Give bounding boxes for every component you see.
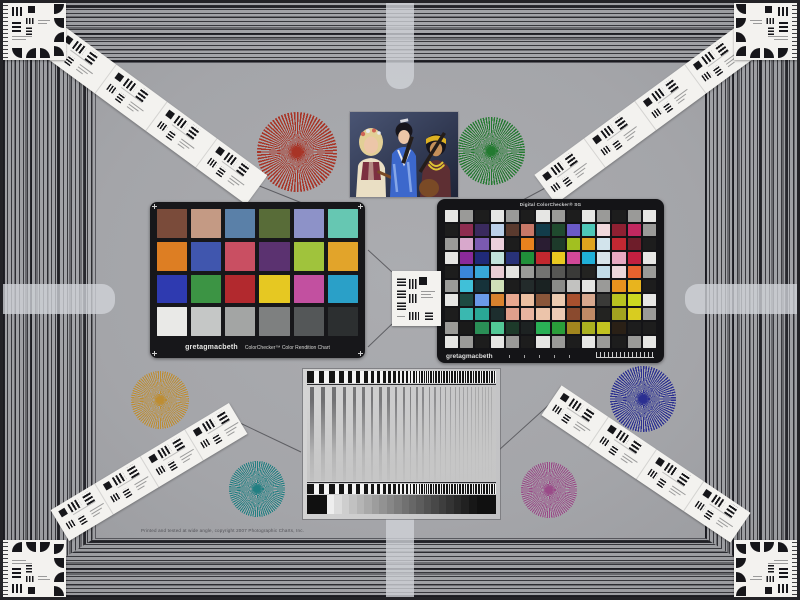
decorative-shape [421,291,435,292]
fan-mark [736,544,746,554]
sg-patch [536,238,549,250]
sg-patch [612,210,625,222]
portrait-photo [350,112,458,197]
cc-patch [157,209,187,238]
decorative-shape [12,39,26,40]
usaf-bars [409,312,419,320]
sg-patch [506,336,519,348]
sg-patch [582,210,595,222]
decorative-shape [319,484,325,494]
sg-patch [475,294,488,306]
usaf-square [103,481,113,491]
decorative-shape [410,371,412,383]
sg-patch [552,224,565,236]
sg-patch [536,280,549,292]
usaf-bars [766,18,774,24]
fan-mark [736,586,746,596]
wedge-end-square [476,495,496,514]
decorative-shape [364,484,368,494]
decorative-shape [426,484,427,494]
sg-patch [445,252,458,264]
decorative-shape [152,206,157,207]
decorative-shape [774,39,788,40]
usaf-bars [12,7,24,16]
sg-patch [506,294,519,306]
fan-mark [40,48,50,58]
cc-patch [328,275,358,304]
sg-patch [643,280,656,292]
decorative-shape [307,371,314,383]
cc-patch [294,242,324,271]
cc-patch [191,307,221,336]
sg-patch [612,294,625,306]
edge-marker-left [3,284,115,314]
sg-patch [628,336,641,348]
decorative-shape [348,371,353,383]
cc-patch [157,275,187,304]
usaf-bars [609,445,620,456]
cc-patch [294,275,324,304]
usaf-bars [768,27,774,35]
sg-patch [536,210,549,222]
decorative-shape [398,371,400,383]
colorchecker-sg-brand: gretagmacbeth [446,353,493,360]
fan-mark [54,586,64,596]
sg-patch [475,252,488,264]
sg-patch [536,308,549,320]
sg-patch [597,210,610,222]
decorative-shape [424,484,425,494]
sg-patch [567,238,580,250]
decorative-shape [421,294,431,295]
decorative-shape [2,2,66,60]
decorative-shape [38,579,50,580]
decorative-shape [307,484,314,494]
sg-patch [582,322,595,334]
fan-mark [54,558,64,568]
fan-mark [750,48,760,58]
wedge-end-square [307,495,327,514]
sg-patch [628,210,641,222]
decorative-shape [426,371,427,383]
sg-patch [536,252,549,264]
green-starburst [457,117,525,185]
usaf-bars [26,18,34,24]
fan-mark [764,542,774,552]
decorative-shape [753,576,762,577]
sg-patch [552,266,565,278]
decorative-shape [356,484,360,494]
sg-patch [521,322,534,334]
sg-patch [552,294,565,306]
usaf-square [58,508,68,518]
sg-patch [643,308,656,320]
sg-patch [536,224,549,236]
decorative-shape [329,371,335,383]
usaf-square [607,425,617,435]
fan-mark [736,572,746,582]
usaf-bars [768,565,774,573]
usaf-square [28,6,35,13]
usaf-square [542,171,552,181]
decorative-shape [377,484,380,494]
decorative-shape [734,540,798,598]
fan-mark [54,572,64,582]
sg-patch [612,322,625,334]
ruler-ticks [792,4,797,58]
cc-patch [328,307,358,336]
fan-mark [736,558,746,568]
gray-step [469,495,477,514]
fan-mark [54,544,64,554]
usaf-square [28,587,35,594]
usaf-square [148,454,158,464]
sweep-fade-overlay [307,387,496,481]
decorative-shape [402,371,404,383]
sg-patch [491,224,504,236]
usaf-bars [77,514,88,525]
decorative-shape [12,563,32,564]
sg-patch [612,238,625,250]
decorative-shape [319,371,325,383]
sg-patch [506,308,519,320]
usaf-bars [662,102,673,113]
sg-patch [460,308,473,320]
sg-patch [597,308,610,320]
cc-patch [157,307,187,336]
sg-tick-marks [509,355,580,358]
decorative-shape [421,371,422,383]
sg-patch [552,280,565,292]
usaf-bars [562,176,573,187]
colorchecker-sg-title: Digital ColorChecker® SG [437,202,664,207]
usaf-bars [656,477,667,488]
sg-patch [552,238,565,250]
sg-patch [628,224,641,236]
sg-patch [460,210,473,222]
sg-patch [643,210,656,222]
usaf-bars [155,465,166,476]
sg-patch [597,224,610,236]
decorative-shape [383,371,386,383]
usaf-square [765,587,772,594]
sg-patch [445,308,458,320]
decorative-shape [12,560,26,561]
sg-patch [628,252,641,264]
sg-patch [521,280,534,292]
sg-patch [506,280,519,292]
sg-patch [475,280,488,292]
fan-mark [26,542,36,552]
usaf-bars [564,152,578,167]
usaf-bars [12,20,21,32]
usaf-bars [26,565,32,573]
sg-patch [491,266,504,278]
usaf-bars [647,468,658,479]
sg-patch [582,252,595,264]
fan-mark [764,48,774,58]
sg-patch [567,266,580,278]
sg-patch [445,266,458,278]
cc-plus-mark [152,351,157,356]
test-chart-scene: gretagmacbethColorChecker™ Color Renditi… [0,0,800,600]
cc-plus-mark [152,204,157,209]
usaf-bars [599,436,610,447]
usaf-bars [776,584,788,593]
decorative-shape [768,563,788,564]
sg-patch [506,252,519,264]
cc-patch [259,242,289,271]
usaf-bars [409,294,417,303]
decorative-shape [419,371,420,383]
sg-patch [628,294,641,306]
sg-patch [582,336,595,348]
sg-patch [536,266,549,278]
decorative-shape [339,484,344,494]
sg-patch [643,224,656,236]
colorchecker-classic-grid [157,209,358,336]
sg-patch [491,322,504,334]
usaf-bars [26,576,34,582]
sg-patch [612,336,625,348]
ruler-ticks [3,4,8,58]
sg-patch [628,266,641,278]
decorative-shape [397,316,405,317]
usaf-bars [701,71,712,82]
decorative-shape [38,576,47,577]
decorative-shape [364,371,368,383]
decorative-shape [416,371,418,383]
usaf-bars [397,278,406,286]
sg-patch [597,280,610,292]
sweep-rule-top [307,384,496,385]
fine-print: Printed and tested at wide angle, copyri… [141,528,341,533]
sg-patch [612,308,625,320]
decorative-shape [339,371,344,383]
sg-patch [567,336,580,348]
usaf-bars [66,519,77,530]
colorchecker-classic-chart: gretagmacbethColorChecker™ Color Renditi… [150,202,365,358]
fan-mark [736,46,746,56]
sg-patch [506,210,519,222]
sg-patch [552,336,565,348]
sg-patch [475,266,488,278]
cc-patch [259,275,289,304]
decorative-shape [358,353,363,354]
usaf-bars [165,129,176,140]
sg-patch [597,238,610,250]
fan-mark [40,542,50,552]
usaf-square [702,489,712,499]
decorative-shape [734,2,798,60]
decorative-shape [413,484,415,494]
sg-patch [475,322,488,334]
sg-patch [445,238,458,250]
sg-patch [643,336,656,348]
sg-patch [612,224,625,236]
sg-patch [597,294,610,306]
edge-marker-top [386,3,414,89]
sg-patch [628,322,641,334]
sg-patch [475,224,488,236]
sg-patch [567,224,580,236]
fan-mark [12,48,22,58]
usaf-square [643,98,653,108]
usaf-bars [200,438,211,449]
sg-patch [460,266,473,278]
sg-patch [582,294,595,306]
sg-patch [536,294,549,306]
fan-mark [778,48,788,58]
fan-mark [736,18,746,28]
fan-mark [54,32,64,42]
decorative-shape [348,484,353,494]
sg-patch [567,322,580,334]
sweep-rule-bottom [307,482,496,483]
cc-patch [191,275,221,304]
colorchecker-sg-chart: Digital ColorChecker® SG gretagmacbeth [437,199,664,363]
usaf-bars [776,7,788,16]
decorative-shape [753,23,762,24]
fan-mark [12,542,22,552]
sg-patch [475,308,488,320]
cc-patch [294,307,324,336]
frequency-sweep-chart [303,369,500,519]
usaf-bars [612,139,623,150]
usaf-bars [561,413,572,424]
sg-patch [506,322,519,334]
decorative-shape [410,484,412,494]
sg-patch [506,224,519,236]
sg-patch [643,294,656,306]
cc-patch [259,209,289,238]
usaf-bars [766,576,774,582]
sg-patch [521,266,534,278]
decorative-shape [358,206,363,207]
sg-patch [628,238,641,250]
usaf-bars [550,181,561,192]
decorative-shape [377,371,380,383]
sg-patch [491,336,504,348]
sg-patch [460,224,473,236]
decorative-shape [774,560,788,561]
sg-patch [460,238,473,250]
sg-patch [460,322,473,334]
corner-registration-card [734,2,798,60]
decorative-shape [750,579,762,580]
sg-patch [597,252,610,264]
sg-patch [491,210,504,222]
sg-patch [521,238,534,250]
cc-patch [191,209,221,238]
corner-registration-card [2,2,66,60]
decorative-shape [398,484,400,494]
sg-patch [612,252,625,264]
decorative-shape [393,371,396,383]
decorative-shape [750,20,762,21]
sg-patch [506,266,519,278]
decorative-shape [388,371,391,383]
decorative-shape [419,484,420,494]
sg-patch [521,308,534,320]
usaf-square [165,109,175,119]
usaf-bars [122,487,133,498]
decorative-shape [38,23,47,24]
corner-registration-card [2,540,66,598]
sg-patch [643,266,656,278]
sg-patch [567,252,580,264]
sg-patch [597,336,610,348]
sg-patch [567,280,580,292]
sg-patch [521,224,534,236]
decorative-shape [421,297,433,298]
sg-patch [582,266,595,278]
sg-patch [582,308,595,320]
sg-patch [475,210,488,222]
sg-patch [552,252,565,264]
sg-patch [521,252,534,264]
decorative-shape [424,371,425,383]
cc-patch [191,242,221,271]
sg-patch [552,322,565,334]
usaf-bars [694,500,705,511]
usaf-square [193,427,203,437]
sg-patch [628,280,641,292]
sg-patch [628,308,641,320]
usaf-bars [26,27,32,35]
edge-marker-right [685,284,797,314]
edge-marker-bottom [386,506,414,597]
decorative-shape [388,484,391,494]
usaf-bars [651,108,662,119]
colorchecker-brand: gretagmacbeth [185,344,238,351]
magenta-starburst [521,462,577,518]
sg-patch [567,210,580,222]
decorative-shape [402,484,404,494]
cc-plus-mark [358,204,363,209]
sg-patch [521,294,534,306]
sweep-tick-strip-top [307,371,496,383]
usaf-square [592,134,602,144]
cc-patch [328,209,358,238]
fan-mark [736,32,746,42]
usaf-bars [712,65,723,76]
usaf-bars [779,568,788,580]
sg-patch [582,238,595,250]
sg-patch [597,322,610,334]
sg-patch [536,322,549,334]
sg-patch [491,308,504,320]
fan-mark [750,542,760,552]
usaf-bars [664,78,678,93]
sg-patch [460,294,473,306]
sg-ruler-scale [596,352,654,358]
usaf-bars [397,290,406,298]
usaf-bars [779,20,788,32]
ruler-ticks [3,542,8,596]
cc-patch [225,275,255,304]
sg-patch [475,336,488,348]
decorative-shape [152,353,157,354]
decorative-shape [406,371,408,383]
sg-patch [552,308,565,320]
sg-patch [445,336,458,348]
grayscale-step-wedge [307,495,496,514]
usaf-bars [157,121,168,132]
usaf-square [765,6,772,13]
sweep-line-area [307,387,496,481]
sg-patch [445,210,458,222]
